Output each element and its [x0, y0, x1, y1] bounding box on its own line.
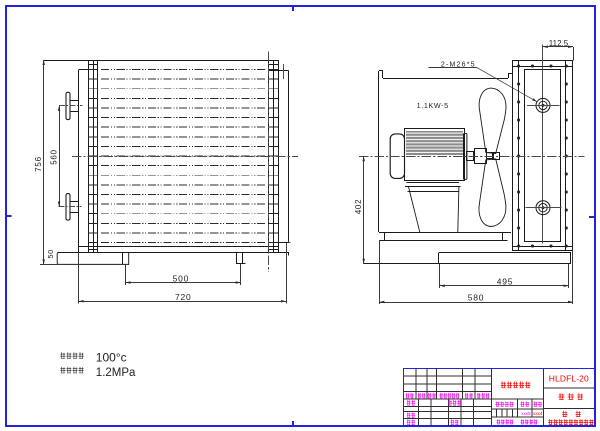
svg-text:1.1KW-5: 1.1KW-5: [417, 101, 449, 110]
svg-text:402: 402: [354, 199, 363, 214]
svg-text:560: 560: [49, 149, 58, 164]
svg-text:495: 495: [497, 276, 514, 286]
svg-text:xxx4: xxx4: [533, 411, 543, 416]
svg-text:500: 500: [173, 273, 190, 283]
svg-text:50: 50: [46, 249, 55, 259]
svg-text:HLDFL-20: HLDFL-20: [549, 374, 589, 384]
svg-text:xxx5: xxx5: [521, 411, 531, 416]
svg-text:756: 756: [34, 156, 43, 171]
svg-text:1.2MPa: 1.2MPa: [96, 367, 136, 379]
svg-text:720: 720: [175, 292, 192, 302]
svg-text:580: 580: [468, 293, 485, 303]
svg-text:100°c: 100°c: [96, 351, 127, 365]
